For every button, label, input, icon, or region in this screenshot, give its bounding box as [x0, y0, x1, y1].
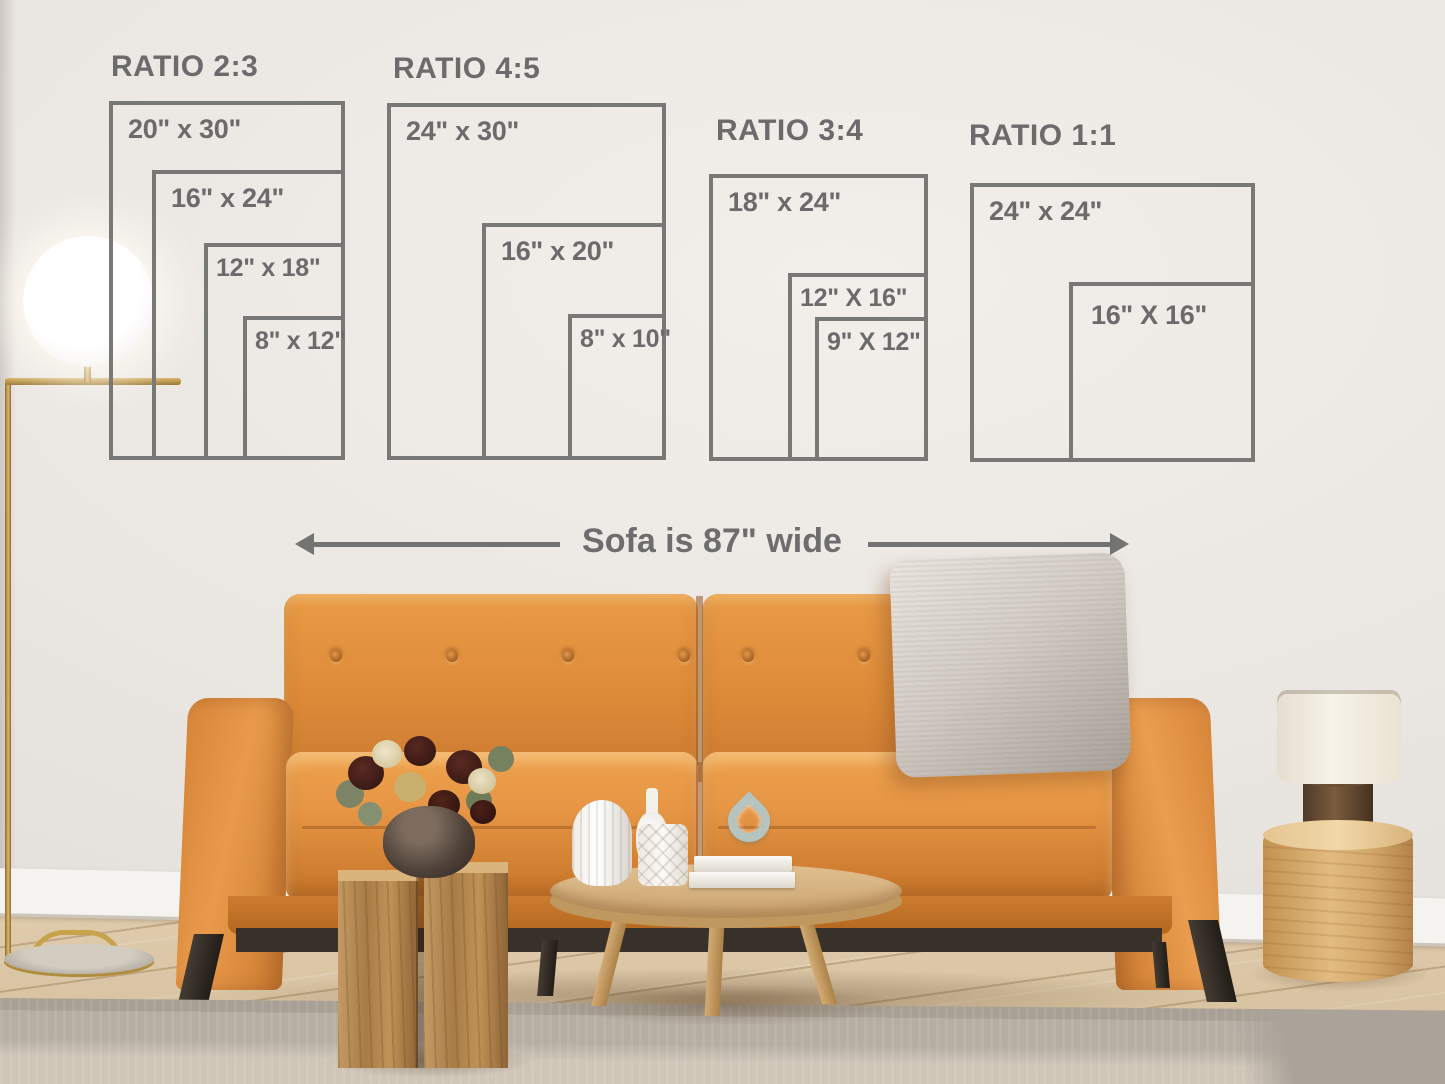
size-frame-8x12: 8" x 12"	[243, 316, 345, 460]
size-label: 24" x 24"	[989, 196, 1102, 227]
left-arrow-line	[312, 542, 560, 547]
size-label: 18" x 24"	[728, 187, 841, 218]
size-label: 8" x 10"	[580, 325, 671, 354]
right-arrow-icon	[1110, 533, 1129, 555]
size-guide-overlay: RATIO 2:3 20" x 30" 16" x 24" 12" x 18" …	[0, 0, 1445, 1084]
right-arrow-line	[868, 542, 1112, 547]
size-label: 20" x 30"	[128, 114, 241, 145]
size-label: 8" x 12"	[255, 327, 346, 356]
size-label: 24" x 30"	[406, 116, 519, 147]
ratio-title-4-5: RATIO 4:5	[393, 52, 540, 86]
sofa-width-label: Sofa is 87" wide	[556, 522, 868, 561]
size-frame-9x12: 9" X 12"	[815, 317, 928, 461]
ratio-title-2-3: RATIO 2:3	[111, 50, 258, 84]
ratio-title-3-4: RATIO 3:4	[716, 114, 863, 148]
size-label: 12" X 16"	[800, 284, 907, 313]
size-guide-image: RATIO 2:3 20" x 30" 16" x 24" 12" x 18" …	[0, 0, 1445, 1084]
size-frame-8x10: 8" x 10"	[568, 314, 666, 460]
ratio-title-1-1: RATIO 1:1	[969, 119, 1116, 153]
size-label: 9" X 12"	[827, 328, 921, 357]
size-label: 12" x 18"	[216, 254, 320, 283]
size-label: 16" x 24"	[171, 183, 284, 214]
size-label: 16" x 20"	[501, 236, 614, 267]
size-label: 16" X 16"	[1091, 300, 1207, 331]
size-frame-16x16: 16" X 16"	[1069, 282, 1255, 462]
